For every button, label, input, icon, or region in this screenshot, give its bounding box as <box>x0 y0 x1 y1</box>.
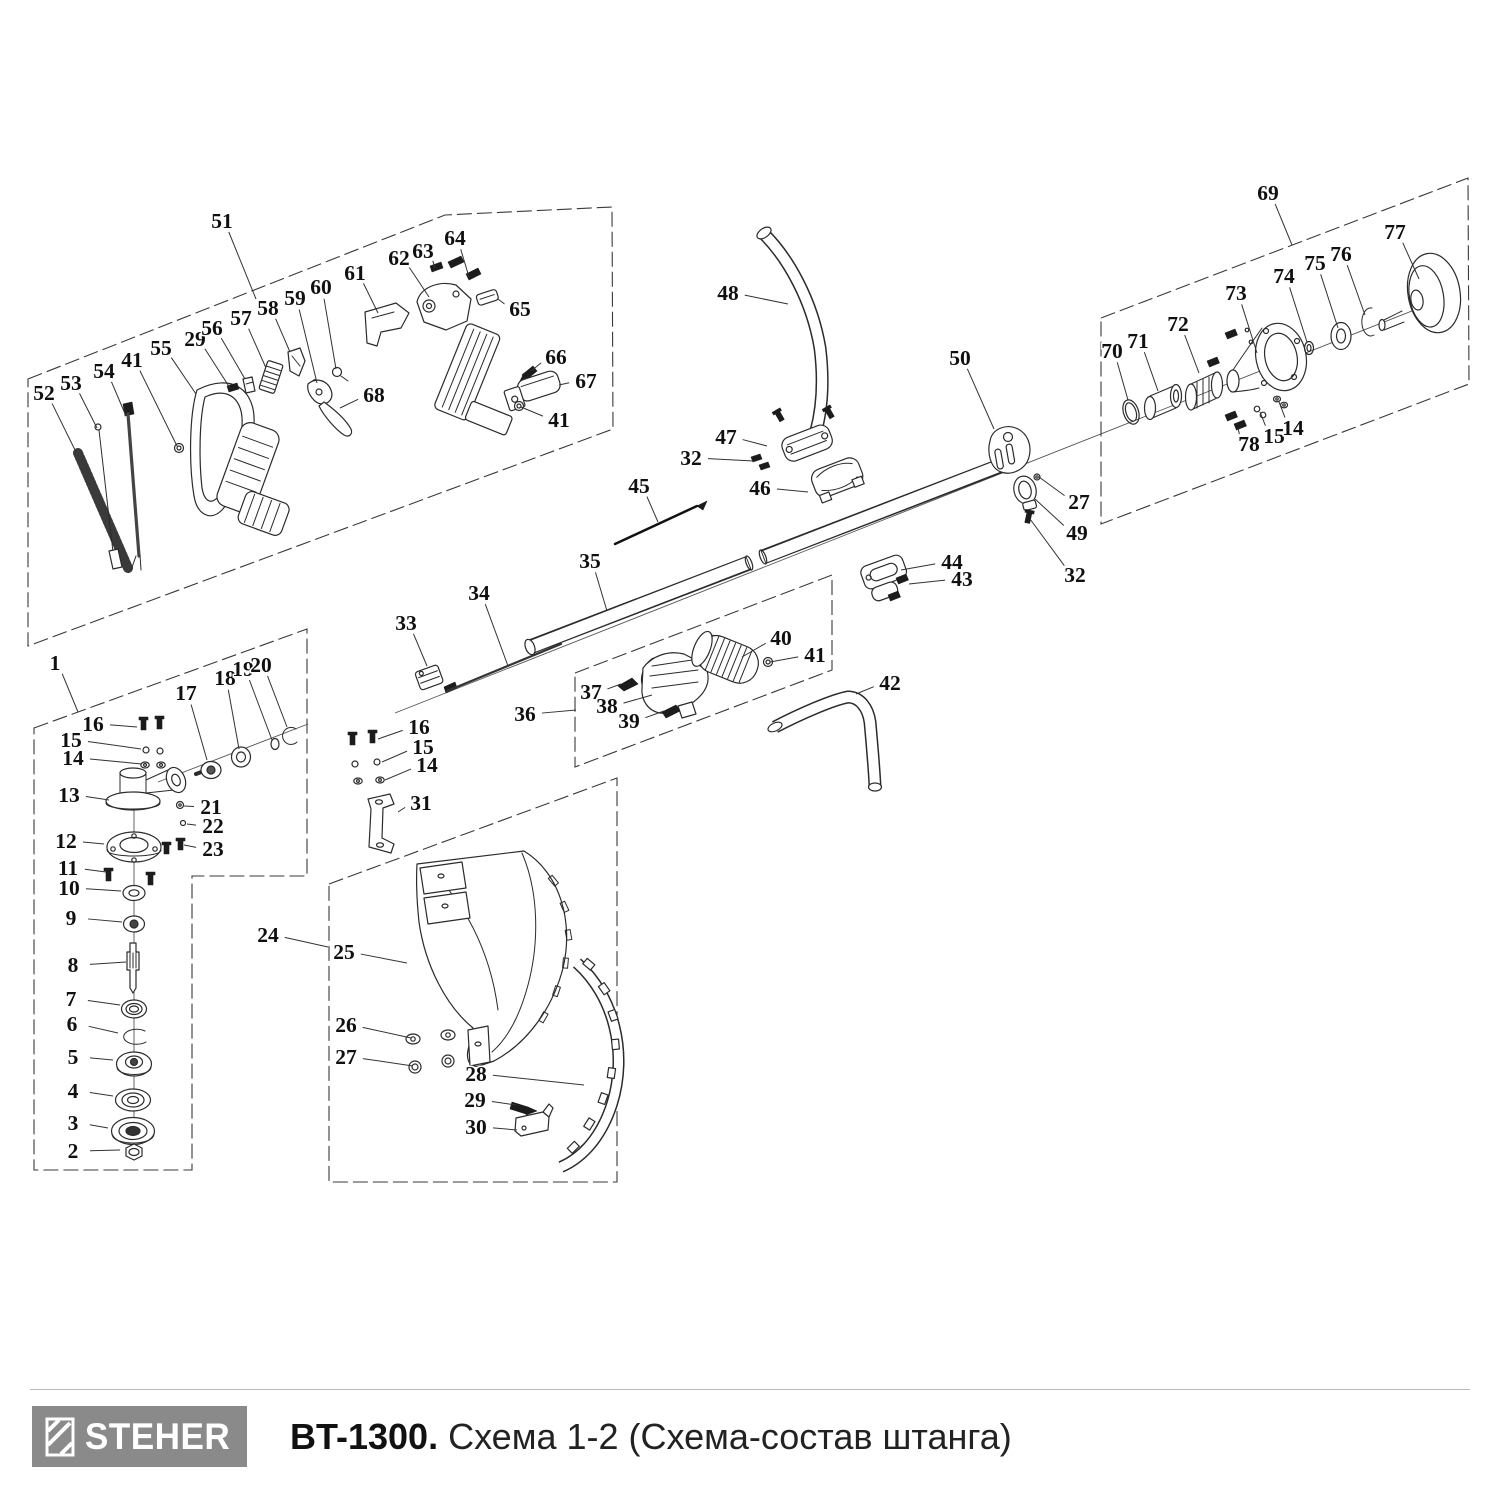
part-42-right-handlebar <box>767 697 882 791</box>
leader-line-27 <box>363 1059 413 1066</box>
leader-line-48 <box>745 295 788 304</box>
leader-line-9 <box>88 919 122 922</box>
part-71-bushing <box>1145 385 1182 420</box>
leader-line-21 <box>184 806 194 807</box>
part-72-spline-sleeve <box>1186 372 1223 410</box>
callout-31: 31 <box>410 791 432 815</box>
callout-34: 34 <box>468 581 490 605</box>
part-57-button <box>259 360 283 393</box>
leader-line-16 <box>110 725 137 727</box>
leader-line-32 <box>1030 519 1064 566</box>
callout-43: 43 <box>951 567 973 591</box>
leader-line-69 <box>1275 204 1292 245</box>
page: 5152535441552956575859606162636465666768… <box>0 0 1500 1500</box>
page-title: BT-1300. Схема 1-2 (Схема-состав штанга) <box>290 1413 1012 1461</box>
part-64-pins <box>448 256 481 280</box>
leader-line-18 <box>228 690 239 749</box>
callout-53: 53 <box>60 371 82 395</box>
leader-line-57 <box>249 329 266 368</box>
callout-72: 72 <box>1167 312 1189 336</box>
leader-line-14 <box>90 759 142 764</box>
callout-77: 77 <box>1384 220 1406 244</box>
leader-line-33 <box>413 634 427 666</box>
leader-line-72 <box>1185 335 1199 373</box>
leader-line-3 <box>90 1125 108 1128</box>
leader-line-36 <box>542 710 576 713</box>
callout-6: 6 <box>67 1012 78 1036</box>
leader-line-1 <box>62 674 78 712</box>
part-77-clutch-drum <box>1379 249 1467 337</box>
callout-41: 41 <box>804 643 826 667</box>
callout-48: 48 <box>717 281 739 305</box>
callout-76: 76 <box>1330 242 1352 266</box>
leader-line-68 <box>340 399 358 408</box>
callout-5: 5 <box>68 1045 79 1069</box>
callout-65: 65 <box>509 297 531 321</box>
callout-39: 39 <box>618 709 640 733</box>
callout-3: 3 <box>68 1111 79 1135</box>
leader-line-61 <box>363 283 378 313</box>
callout-41: 41 <box>548 408 570 432</box>
leader-line-50 <box>967 369 994 429</box>
part-19-washer <box>271 739 279 750</box>
part-31-bracket <box>368 794 394 853</box>
callout-67: 67 <box>575 369 597 393</box>
part-3-lower-cup <box>112 1118 155 1145</box>
leader-line-35 <box>595 572 607 611</box>
callout-63: 63 <box>412 239 434 263</box>
leader-line-71 <box>1144 352 1158 391</box>
part-14-washers-mid <box>354 777 384 784</box>
leader-line-30 <box>493 1128 517 1130</box>
part-9-bearing <box>124 916 145 932</box>
assembly-box-front-handle <box>28 207 613 646</box>
part-60-ring <box>333 368 349 382</box>
leader-line-14 <box>385 769 411 780</box>
callout-74: 74 <box>1273 264 1295 288</box>
leader-line-75 <box>1321 274 1338 328</box>
callout-47: 47 <box>715 425 737 449</box>
callout-17: 17 <box>175 681 197 705</box>
part-8-spline-shaft <box>127 943 139 993</box>
part-56-clip <box>243 377 255 393</box>
part-7-bearing <box>122 1000 147 1018</box>
part-16-screws <box>139 716 164 730</box>
part-14-washers <box>141 762 165 768</box>
footer-divider <box>30 1389 1470 1390</box>
leader-line-25 <box>361 954 407 963</box>
leader-line-45 <box>647 497 658 522</box>
part-75-bearing <box>1331 323 1351 350</box>
part-74-washer <box>1305 342 1314 355</box>
callout-46: 46 <box>749 476 771 500</box>
callout-9: 9 <box>66 906 77 930</box>
callout-32: 32 <box>1064 563 1086 587</box>
callout-54: 54 <box>93 359 115 383</box>
part-23-screws <box>162 838 185 854</box>
part-78-screws <box>1225 411 1247 430</box>
callout-59: 59 <box>284 286 306 310</box>
callout-7: 7 <box>66 987 77 1011</box>
leader-line-27 <box>1039 477 1065 496</box>
leader-line-41 <box>770 657 798 662</box>
leader-line-43 <box>909 580 945 584</box>
part-16-screws-mid <box>348 730 377 745</box>
callout-14: 14 <box>416 753 438 777</box>
callout-68: 68 <box>363 383 385 407</box>
leader-line-46 <box>777 489 808 492</box>
leader-line-55 <box>171 358 196 394</box>
callout-28: 28 <box>465 1062 487 1086</box>
leader-line-16 <box>378 730 403 739</box>
part-48-left-handlebar <box>755 225 825 438</box>
leader-line-8 <box>90 962 126 964</box>
part-63-screw <box>430 262 443 272</box>
leader-line-32 <box>708 459 754 461</box>
callout-75: 75 <box>1304 251 1326 275</box>
part-47-upper-clamp <box>772 405 836 464</box>
leader-line-41 <box>521 407 543 416</box>
leader-line-11 <box>85 869 106 872</box>
leader-line-58 <box>276 319 290 352</box>
part-33-clamp <box>415 664 444 690</box>
callout-8: 8 <box>68 953 79 977</box>
leader-line-34 <box>485 604 508 666</box>
leader-line-54 <box>111 382 126 416</box>
callout-35: 35 <box>579 549 601 573</box>
leader-line-15 <box>88 742 141 749</box>
callout-50: 50 <box>949 346 971 370</box>
part-54-flex-shaft <box>123 402 141 570</box>
callout-62: 62 <box>388 246 410 270</box>
leader-line-62 <box>409 268 429 297</box>
part-55-loop-handle <box>191 383 291 537</box>
leader-line-41 <box>140 371 177 446</box>
part-20-circlip <box>283 727 297 744</box>
part-50-coupler <box>989 427 1030 473</box>
leader-line-12 <box>83 842 104 844</box>
callout-57: 57 <box>230 306 252 330</box>
part-62-rear-handle-housing <box>417 284 513 436</box>
callout-61: 61 <box>344 261 366 285</box>
callout-40: 40 <box>770 626 792 650</box>
part-18-bearing <box>232 747 251 767</box>
parts-diagram: 5152535441552956575859606162636465666768… <box>0 0 1500 1500</box>
callout-10: 10 <box>58 876 80 900</box>
callout-69: 69 <box>1257 181 1279 205</box>
leader-line-28 <box>493 1075 584 1085</box>
callout-14: 14 <box>1282 416 1304 440</box>
callout-38: 38 <box>596 694 618 718</box>
callout-73: 73 <box>1225 281 1247 305</box>
leader-line-59 <box>299 310 317 383</box>
part-22-pin <box>181 821 186 826</box>
leader-line-51 <box>229 232 256 299</box>
part-68-throttle-lever <box>308 380 352 436</box>
callout-20: 20 <box>250 653 272 677</box>
callout-42: 42 <box>879 671 901 695</box>
callout-23: 23 <box>202 837 224 861</box>
callout-52: 52 <box>33 381 55 405</box>
part-21-screw <box>177 802 184 809</box>
leader-line-76 <box>1347 265 1365 315</box>
brand-name: STEHER <box>85 1416 230 1458</box>
part-46-lower-clamp <box>809 455 868 504</box>
leader-line-2 <box>90 1150 120 1151</box>
part-17-pinion-shaft <box>196 762 221 779</box>
part-41-nut <box>515 402 524 411</box>
callout-13: 13 <box>58 783 80 807</box>
brand-logo: STEHER <box>32 1406 247 1467</box>
callout-78: 78 <box>1238 432 1260 456</box>
callout-58: 58 <box>257 296 279 320</box>
leader-line-19 <box>249 680 272 740</box>
callout-32: 32 <box>680 446 702 470</box>
leader-line-26 <box>363 1027 411 1038</box>
callout-4: 4 <box>68 1079 79 1103</box>
leader-line-13 <box>86 796 109 800</box>
part-28-guard-strip <box>561 958 619 1167</box>
part-2-nut <box>126 1144 142 1160</box>
brand-logo-icon <box>45 1417 75 1457</box>
callout-27: 27 <box>1068 490 1090 514</box>
callout-25: 25 <box>333 940 355 964</box>
leader-line-53 <box>80 393 97 428</box>
leader-line-49 <box>1035 499 1064 525</box>
leader-line-7 <box>88 1000 120 1005</box>
part-29-screw <box>510 1102 537 1115</box>
callout-22: 22 <box>202 814 224 838</box>
callout-33: 33 <box>395 611 417 635</box>
leader-line-23 <box>184 845 196 847</box>
leader-line-29 <box>205 349 230 388</box>
callout-71: 71 <box>1127 329 1149 353</box>
callout-70: 70 <box>1101 339 1123 363</box>
leader-line-70 <box>1117 362 1128 400</box>
part-15-washers-mid <box>352 759 380 767</box>
leader-line-20 <box>268 676 287 727</box>
part-67-clamp <box>502 369 563 411</box>
part-10-bearing <box>123 886 145 901</box>
callout-51: 51 <box>211 209 233 233</box>
callout-12: 12 <box>55 829 77 853</box>
callout-2: 2 <box>68 1139 79 1163</box>
callout-55: 55 <box>150 336 172 360</box>
leader-line-10 <box>86 889 121 891</box>
callout-30: 30 <box>465 1115 487 1139</box>
callout-14: 14 <box>62 746 84 770</box>
part-26-washers <box>406 1030 455 1044</box>
leader-line-42 <box>856 687 874 694</box>
leader-line-15 <box>382 751 407 762</box>
leader-line-44 <box>901 564 935 570</box>
callout-1: 1 <box>50 651 61 675</box>
leader-line-5 <box>90 1058 113 1060</box>
part-25-guard <box>417 851 572 1066</box>
part-6-circlip <box>124 1029 146 1044</box>
leader-line-52 <box>52 404 76 452</box>
part-12-flange <box>107 832 161 862</box>
part-61-trigger <box>365 303 409 346</box>
callout-36: 36 <box>514 702 536 726</box>
leader-line-24 <box>285 937 328 947</box>
leader-line-6 <box>89 1026 118 1033</box>
leader-line-17 <box>191 704 207 760</box>
schema-name: Схема 1-2 (Схема-состав штанга) <box>448 1416 1012 1458</box>
callout-56: 56 <box>201 316 223 340</box>
model-number: BT-1300. <box>290 1416 438 1458</box>
callout-45: 45 <box>628 474 650 498</box>
leader-line-47 <box>743 440 767 446</box>
callout-29: 29 <box>464 1088 486 1112</box>
part-15-washers <box>143 747 163 754</box>
part-65-clip <box>476 289 499 306</box>
part-5-upper-cup <box>117 1052 152 1076</box>
part-52-spring <box>78 453 128 568</box>
callout-66: 66 <box>545 345 567 369</box>
leader-line-4 <box>90 1092 113 1096</box>
callout-60: 60 <box>310 275 332 299</box>
leader-line-60 <box>324 299 336 369</box>
callout-27: 27 <box>335 1045 357 1069</box>
callout-26: 26 <box>335 1013 357 1037</box>
leader-line-31 <box>398 807 405 812</box>
part-32-screws <box>751 454 770 470</box>
leader-line-65 <box>498 299 505 304</box>
callout-16: 16 <box>82 712 104 736</box>
part-45-rod <box>615 501 707 544</box>
part-4-washer <box>116 1089 151 1111</box>
part-11-screws <box>104 868 155 885</box>
leader-line-22 <box>187 824 196 825</box>
part-41-nut <box>175 444 184 453</box>
callout-41: 41 <box>121 348 143 372</box>
leader-line-56 <box>221 338 245 379</box>
part-27-nuts <box>409 1055 454 1073</box>
part-58-lock-latch <box>288 348 305 376</box>
callout-24: 24 <box>257 923 279 947</box>
callout-49: 49 <box>1066 521 1088 545</box>
callout-64: 64 <box>444 226 466 250</box>
